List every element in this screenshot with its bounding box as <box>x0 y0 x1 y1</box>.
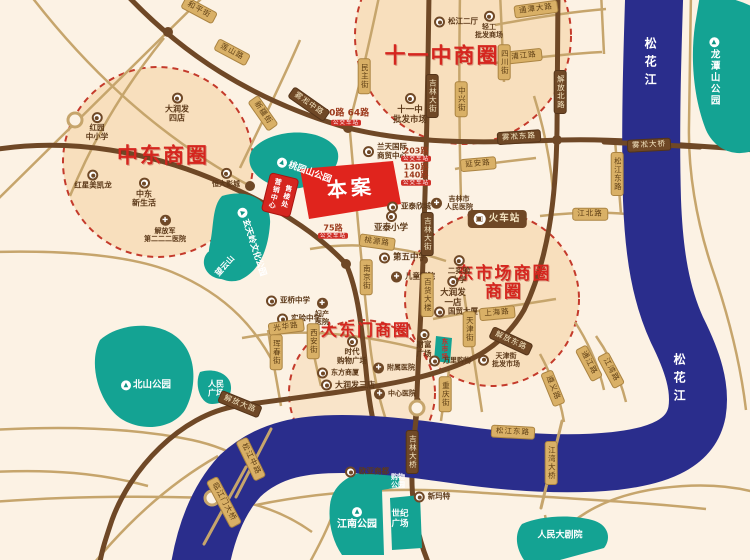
road-label: 解放大路 <box>217 390 263 418</box>
location-icon <box>434 17 445 28</box>
road-label: 松江东路 <box>491 425 536 440</box>
road-label: 天津街 <box>463 311 476 347</box>
park-label-text: 龙潭山公园 <box>708 49 719 107</box>
poi-label-text: 东方商厦 <box>331 369 359 377</box>
road-label-text: 江湾路 <box>602 356 622 383</box>
hospital-label-text: 解放军 第二二二医院 <box>144 227 186 244</box>
poi-label: 中东 新生活 <box>132 178 156 209</box>
mountain-icon: ▲ <box>352 507 362 517</box>
poi-label: 东方商厦 <box>317 368 359 379</box>
location-icon <box>88 170 99 181</box>
poi-label: 恒大影城 <box>212 168 240 188</box>
bus-stop-tag: 公交车站 <box>331 120 361 126</box>
road-label: 通江路 <box>575 344 603 381</box>
poi-label-text: 大润发 四店 <box>165 105 189 124</box>
poi-label: 欧亚商都 <box>345 467 389 478</box>
road-label: 延安路 <box>460 156 496 172</box>
poi-label: 红星美凯龙 <box>74 170 112 191</box>
river-label-text: 松花江 <box>643 37 657 91</box>
road-label-text: 和平街 <box>186 0 213 19</box>
poi-label: 天津街 批发市场 <box>478 352 520 369</box>
poi-label: 轻工 批发商场 <box>475 11 503 40</box>
road-label-text: 中兴街 <box>457 86 466 112</box>
road-label: 遵义路 <box>540 369 565 407</box>
road-label-text: 桃源路 <box>364 235 391 247</box>
road-label: 珲春街 <box>270 334 283 370</box>
road-label-text: 浦江路 <box>511 49 537 61</box>
road-label: 新疆街 <box>248 95 279 131</box>
road-label: 解放北路 <box>554 70 567 114</box>
poi-label-text: 十一中 批发市场 <box>393 105 427 125</box>
road-label-text: 通潭大路 <box>518 1 553 15</box>
road-label: 浦江路 <box>506 48 543 64</box>
park-label-text: 江南公园 <box>337 519 377 531</box>
road-label-text: 延安路 <box>465 158 491 169</box>
bus-stop-tag: 公交车站 <box>318 233 348 239</box>
train-station-text: 火车站 <box>489 213 521 224</box>
poi-label-text: 天津街 批发市场 <box>492 352 520 369</box>
park-label-text: 北山公园 <box>133 379 171 390</box>
bus-route-label: 140路 <box>404 170 429 179</box>
road-label: 松江东路 <box>611 152 624 196</box>
river-label: 松花江 <box>643 37 657 91</box>
train-icon: ▣ <box>474 213 486 225</box>
bus-stop-tag: 公交车站 <box>401 180 431 186</box>
bus-route-label: 203路 <box>404 146 429 155</box>
road-label-text: 珲春街 <box>272 339 281 365</box>
location-icon <box>484 11 495 22</box>
hospital-label-text: 中心医院 <box>388 390 416 398</box>
poi-label-text: 红星美凯龙 <box>74 182 112 191</box>
bus-route-label-text: 50路 64路 <box>323 109 369 119</box>
poi-label-text: 欧亚商都 <box>359 468 389 477</box>
poi-label: 亚桥中学 <box>266 296 310 307</box>
mountain-icon: ▲ <box>121 380 131 390</box>
poi-label: 财富 广场 <box>417 329 432 359</box>
location-icon <box>447 276 458 287</box>
road-label: 江湾路 <box>597 351 625 388</box>
sales-office-tag-text: 售楼处 营销中心 <box>267 177 293 210</box>
poi-label: 大润发三店 <box>321 380 375 391</box>
hospital-label: ✚中心医院 <box>374 389 416 400</box>
map-labels: 中东商圈十一中商圈大东门商圈东市场商圈 商圈本案售楼处 营销中心▣火车站松花江松… <box>0 0 750 560</box>
road-label-text: 南京街 <box>362 264 371 290</box>
road-label: 桃源路 <box>359 233 396 250</box>
road-label-text: 临江门大桥 <box>211 481 239 523</box>
road-label-text: 雾凇东路 <box>502 131 537 142</box>
poi-label-text: 亚泰小学 <box>374 223 408 233</box>
road-label-text: 解放东路 <box>494 329 529 352</box>
location-icon <box>419 329 430 340</box>
site-label: 本案 <box>326 175 376 203</box>
hospital-cross-icon: ✚ <box>160 215 171 226</box>
bus-route-label: 75路 <box>323 223 342 232</box>
hospital-label: ✚附属医院 <box>373 363 415 374</box>
road-label-text: 民主街 <box>360 63 369 89</box>
poi-label: 亚泰小学 <box>374 211 408 233</box>
poi-label-text: 恒大影城 <box>212 180 240 188</box>
road-label: 和平街 <box>180 0 217 24</box>
district-title-text: 中东商圈 <box>117 144 209 168</box>
poi-label-text: 万里购物 <box>443 357 471 365</box>
location-icon <box>347 336 358 347</box>
road-label: 四川街 <box>498 44 511 80</box>
district-title: 商圈 <box>485 282 523 302</box>
road-label-text: 吉林大街 <box>423 217 432 251</box>
road-label: 百货大楼 <box>421 273 434 317</box>
road-label-text: 百货大楼 <box>423 278 432 312</box>
road-label-text: 新疆街 <box>253 100 275 126</box>
poi-label: 时代 购物广场 <box>337 336 367 366</box>
poi-label-text: 轻工 批发商场 <box>475 23 503 40</box>
road-label: 吉林大街 <box>426 74 439 118</box>
road-label-text: 重庆街 <box>441 381 450 407</box>
road-label: 民主街 <box>358 58 371 94</box>
bus-stop-tag-text: 公交车站 <box>403 180 429 186</box>
poi-label: 第五中学 <box>379 253 427 264</box>
road-label-text: 解放大路 <box>223 393 258 414</box>
road-label-text: 江北路 <box>577 209 603 218</box>
bus-route-label-text: 203路 <box>404 146 429 155</box>
road-label: 雾凇东路 <box>497 129 542 145</box>
hospital-cross-icon: ✚ <box>373 363 384 374</box>
district-title: 十一中商圈 <box>385 44 500 69</box>
location-map: 中东商圈十一中商圈大东门商圈东市场商圈 商圈本案售楼处 营销中心▣火车站松花江松… <box>0 0 750 560</box>
road-label-text: 江湾大桥 <box>547 446 556 480</box>
park-label-text: 世纪 广场 <box>391 509 408 529</box>
road-label-text: 通江路 <box>580 349 600 376</box>
road-label: 通潭大路 <box>513 0 558 18</box>
park-label: ▲玄天岭文化公园 <box>236 206 268 277</box>
road-label: 雾凇大桥 <box>627 138 672 153</box>
poi-label-text: 大润发 一店 <box>440 288 466 308</box>
location-icon <box>345 467 356 478</box>
road-label-text: 吉林大桥 <box>408 435 417 469</box>
road-label: 上海路 <box>479 305 515 321</box>
mountain-icon: ▲ <box>236 206 249 219</box>
hospital-label-text: 吉林市 人民医院 <box>445 195 473 212</box>
bus-stop-tag-text: 公交车站 <box>403 156 429 162</box>
park-label-text: 购物 公园 <box>391 473 405 490</box>
hospital-label: ✚解放军 第二二二医院 <box>144 215 186 244</box>
park-label-text: 人民大剧院 <box>537 531 582 542</box>
hospital-cross-icon: ✚ <box>374 389 385 400</box>
bus-stop-tag-text: 公交车站 <box>320 233 346 239</box>
road-label-text: 天津街 <box>465 316 474 342</box>
poi-label-text: 松江二厅 <box>448 18 478 27</box>
location-icon <box>266 296 277 307</box>
road-label-text: 雾凇大桥 <box>632 139 666 150</box>
road-label: 松江中路 <box>236 436 267 481</box>
hospital-label-text: 附属医院 <box>387 364 415 372</box>
site-label-text: 本案 <box>326 174 376 202</box>
park-label: 购物 公园 <box>391 473 405 490</box>
park-label: 望云山 <box>213 254 236 278</box>
location-icon <box>404 93 415 104</box>
river-label-text: 松花江 <box>672 353 686 407</box>
mountain-icon: ▲ <box>709 37 719 47</box>
road-label: 临江门大桥 <box>206 476 242 528</box>
road-label-text: 遵义路 <box>545 374 563 401</box>
bus-route-label-text: 140路 <box>404 170 429 179</box>
poi-label-text: 大润发三店 <box>335 380 375 389</box>
road-label: 江北路 <box>572 208 608 221</box>
district-title-text: 十一中商圈 <box>385 44 500 68</box>
location-icon <box>414 492 425 503</box>
road-label: 雾凇中路 <box>287 86 330 122</box>
poi-label: 万里购物 <box>429 356 471 367</box>
road-label: 吉林大街 <box>421 212 434 256</box>
poi-label-text: 红园 中小学 <box>86 124 109 142</box>
bus-stop-tag: 公交车站 <box>401 156 431 162</box>
location-icon <box>478 355 489 366</box>
hospital-cross-icon: ✚ <box>431 198 442 209</box>
hospital-label: ✚吉林市 人民医院 <box>431 195 473 212</box>
road-label-text: 吉林大街 <box>428 79 437 113</box>
location-icon <box>429 356 440 367</box>
road-label-text: 松江中路 <box>240 441 263 476</box>
road-label: 南京街 <box>360 259 373 295</box>
river-label: 松花江 <box>672 353 686 407</box>
location-icon <box>363 147 374 158</box>
road-label-text: 光华路 <box>273 320 300 332</box>
location-icon <box>434 307 445 318</box>
district-title: 中东商圈 <box>117 144 209 169</box>
location-icon <box>172 93 183 104</box>
park-label: 世纪 广场 <box>391 509 408 529</box>
poi-label-text: 新玛特 <box>428 493 451 502</box>
location-icon <box>454 255 465 266</box>
poi-label: 十一中 批发市场 <box>393 93 427 125</box>
poi-label-text: 时代 购物广场 <box>337 348 367 366</box>
park-label: 人民大剧院 <box>537 531 582 542</box>
park-label-text: 望云山 <box>213 254 236 278</box>
park-label-text: 玄天岭文化公园 <box>240 218 268 278</box>
location-icon <box>221 168 232 179</box>
sales-office-tag: 售楼处 营销中心 <box>262 173 298 217</box>
road-label: 西安街 <box>307 323 320 359</box>
road-label: 莲山路 <box>213 38 250 66</box>
district-title-text: 商圈 <box>485 282 523 302</box>
location-icon <box>92 112 103 123</box>
road-label-text: 解放北路 <box>556 75 565 109</box>
park-label: ▲江南公园 <box>337 507 377 531</box>
park-label: ▲北山公园 <box>121 379 171 390</box>
road-label: 光华路 <box>268 318 305 335</box>
road-label-text: 上海路 <box>484 307 510 318</box>
road-label: 中兴街 <box>455 81 468 117</box>
location-icon <box>317 368 328 379</box>
road-label: 重庆街 <box>439 376 452 412</box>
train-station: ▣火车站 <box>468 210 527 228</box>
poi-label: 大润发 四店 <box>165 93 189 124</box>
poi-label: 新玛特 <box>414 492 451 503</box>
road-label-text: 松江东路 <box>613 157 622 191</box>
road-label-text: 四川街 <box>500 49 509 75</box>
bus-stop-tag-text: 公交车站 <box>333 120 359 126</box>
bus-route-label: 50路 64路 <box>323 109 369 120</box>
location-icon <box>385 211 396 222</box>
bus-route-label-text: 75路 <box>323 223 342 232</box>
poi-label-text: 中东 新生活 <box>132 190 156 209</box>
location-icon <box>321 380 332 391</box>
road-label-text: 松江东路 <box>496 426 530 437</box>
location-icon <box>139 178 150 189</box>
park-label: ▲龙潭山公园 <box>708 37 719 107</box>
road-label-text: 西安街 <box>309 328 318 354</box>
location-icon <box>379 253 390 264</box>
road-label: 江湾大桥 <box>545 441 558 485</box>
poi-label-text: 亚桥中学 <box>280 297 310 306</box>
hospital-cross-icon: ✚ <box>317 298 328 309</box>
poi-label: 大润发 一店 <box>440 276 466 308</box>
road-label: 吉林大桥 <box>406 430 419 474</box>
road-label-text: 雾凇中路 <box>293 90 326 117</box>
hospital-cross-icon: ✚ <box>391 272 402 283</box>
poi-label: 红园 中小学 <box>86 112 109 142</box>
road-label-text: 莲山路 <box>219 41 246 61</box>
poi-label: 松江二厅 <box>434 17 478 28</box>
district-title-text: 东市场商圈 <box>457 264 552 284</box>
